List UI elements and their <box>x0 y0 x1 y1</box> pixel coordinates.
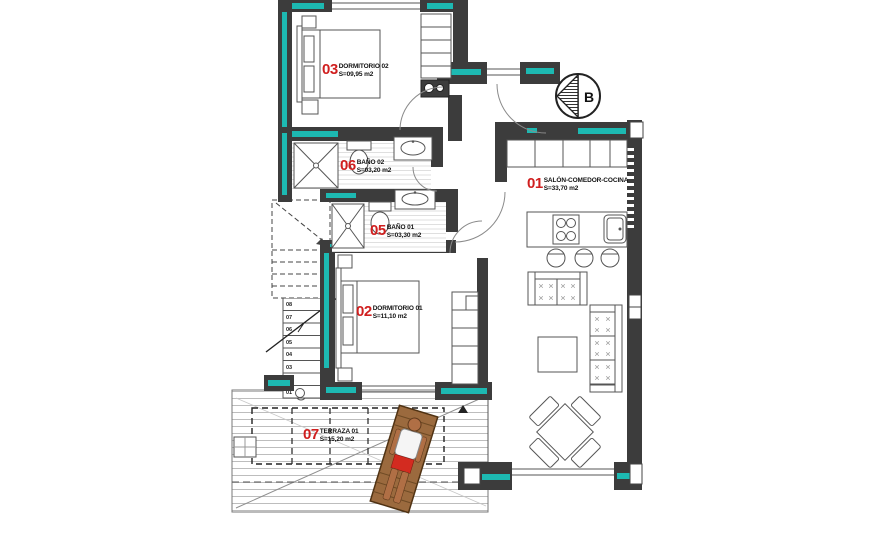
room-name: BAÑO 01 <box>387 224 422 232</box>
room-label-dormitorio-02: 03 DORMITORIO 02 S=09,95 m2 <box>322 63 389 78</box>
dining-set <box>514 381 616 483</box>
room-number: 07 <box>303 428 319 441</box>
room-number: 05 <box>370 224 386 237</box>
stair-step-number: 05 <box>286 340 292 346</box>
compass-label: B <box>584 89 594 105</box>
north-compass: B <box>556 74 600 118</box>
room-label-bano-01: 05 BAÑO 01 S=03,30 m2 <box>370 224 421 239</box>
room-area: S=33,70 m2 <box>544 185 629 193</box>
wardrobe-dorm01 <box>452 292 478 384</box>
room-number: 06 <box>340 159 356 172</box>
stair-step-number: 04 <box>286 352 293 358</box>
room-number: 02 <box>356 305 372 318</box>
room-name: SALÓN-COMEDOR-COCINA <box>544 177 629 185</box>
wardrobe-dorm02 <box>421 14 451 78</box>
room-area: S=11,10 m2 <box>373 313 423 321</box>
stair-step-number: 03 <box>286 365 292 371</box>
room-area: S=03,30 m2 <box>387 232 422 240</box>
room-label-terraza: 07 TERRAZA 01 S=15,20 m2 <box>303 428 359 443</box>
room-area: S=15,20 m2 <box>320 436 359 444</box>
bar-stools <box>547 249 619 267</box>
room-name: DORMITORIO 02 <box>339 63 389 71</box>
room-number: 01 <box>527 177 543 190</box>
floorplan-drawing: 08 07 06 05 04 03 02 01 <box>0 0 870 550</box>
floorplan-canvas: 08 07 06 05 04 03 02 01 <box>0 0 870 550</box>
room-number: 03 <box>322 63 338 76</box>
terrace-floor-light <box>234 437 256 457</box>
room-name: DORMITORIO 01 <box>373 305 423 313</box>
room-label-dormitorio-01: 02 DORMITORIO 01 S=11,10 m2 <box>356 305 423 320</box>
room-label-bano-02: 06 BAÑO 02 S=03,20 m2 <box>340 159 391 174</box>
kitchen-island <box>527 212 627 247</box>
room-area: S=09,95 m2 <box>339 71 389 79</box>
stair-step-number: 08 <box>286 302 292 308</box>
room-name: BAÑO 02 <box>357 159 392 167</box>
stair-step-number: 07 <box>286 315 292 321</box>
room-label-salon: 01 SALÓN-COMEDOR-COCINA S=33,70 m2 <box>527 177 628 192</box>
kitchen-counter <box>507 140 627 167</box>
sofa-two-seat <box>528 272 587 305</box>
sofa-three-seat <box>590 305 622 392</box>
room-name: TERRAZA 01 <box>320 428 359 436</box>
washer-unit <box>421 80 449 97</box>
terrace <box>232 390 488 513</box>
room-area: S=03,20 m2 <box>357 167 392 175</box>
coffee-table <box>538 337 577 372</box>
